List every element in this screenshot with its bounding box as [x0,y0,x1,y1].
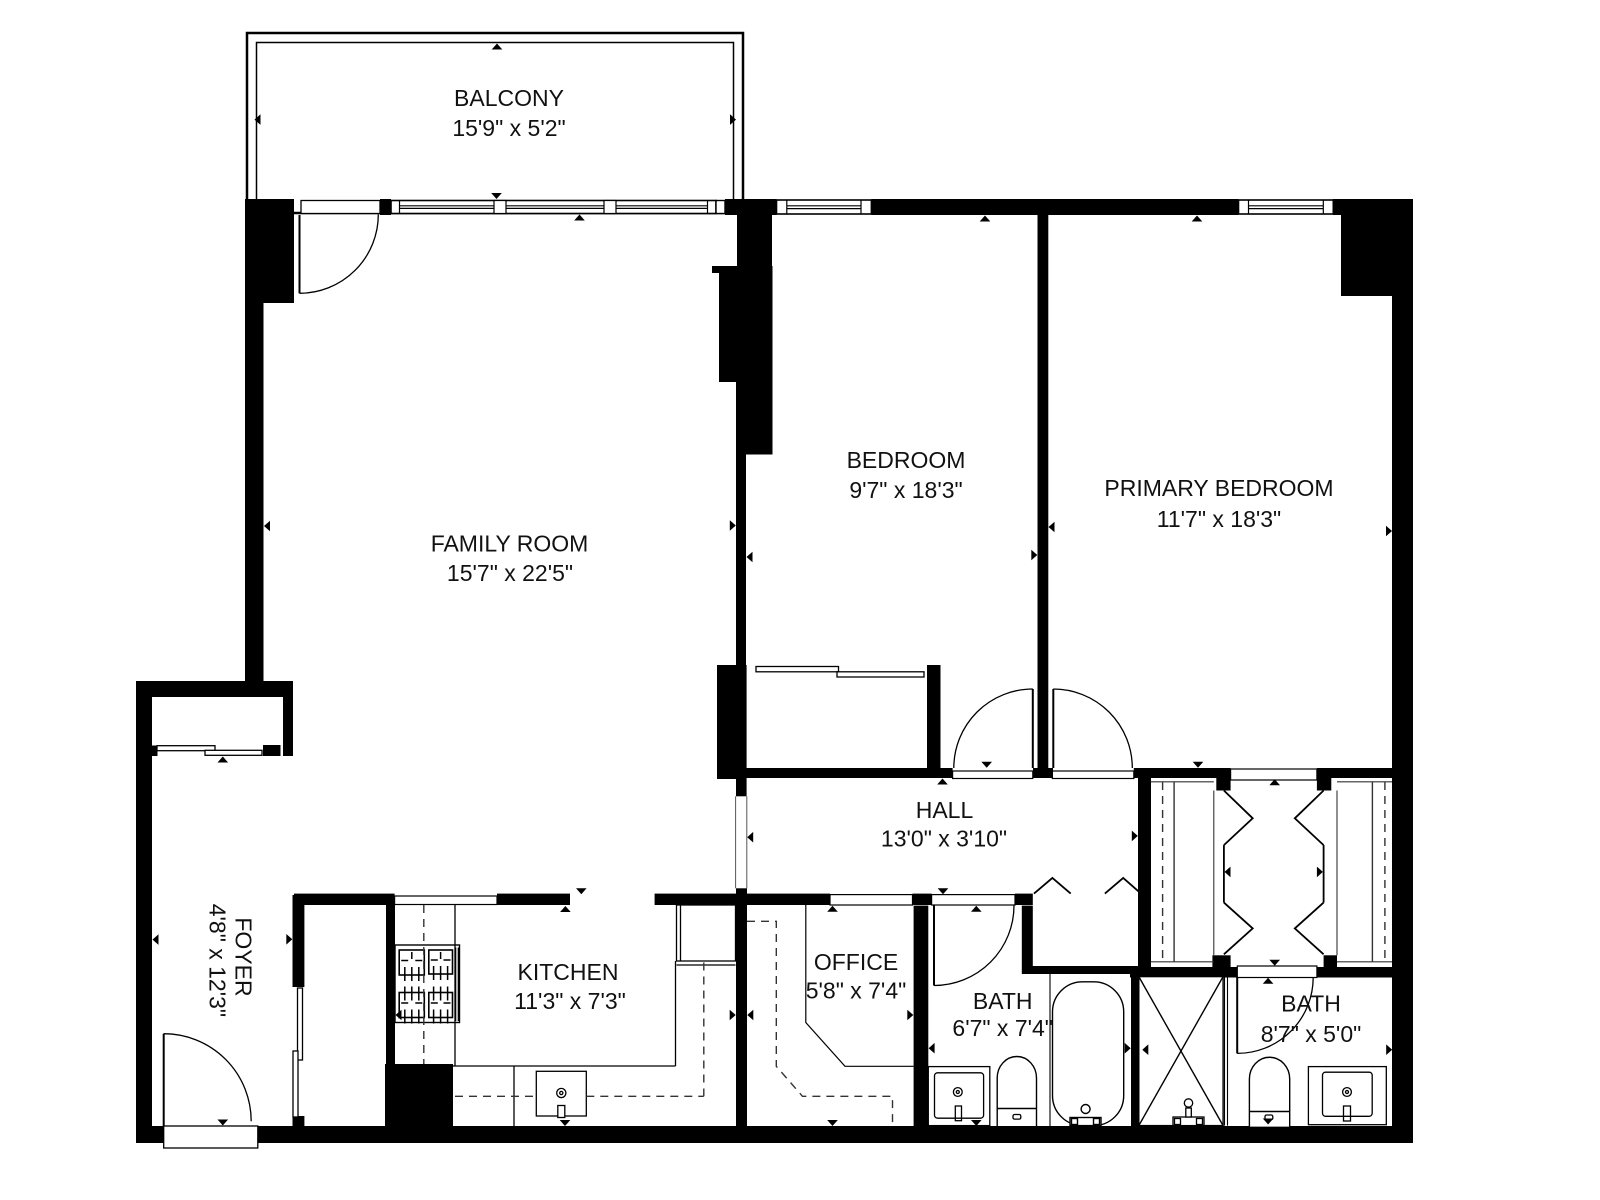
svg-text:HALL: HALL [916,797,974,823]
svg-text:BATH: BATH [973,988,1033,1014]
svg-text:OFFICE: OFFICE [814,949,898,975]
svg-text:PRIMARY BEDROOM: PRIMARY BEDROOM [1104,475,1333,501]
svg-text:11'7" x 18'3": 11'7" x 18'3" [1157,506,1281,532]
svg-text:5'8" x 7'4": 5'8" x 7'4" [806,978,907,1004]
svg-text:9'7" x 18'3": 9'7" x 18'3" [849,477,962,503]
svg-text:BEDROOM: BEDROOM [847,447,966,473]
svg-text:6'7" x 7'4": 6'7" x 7'4" [952,1015,1053,1041]
svg-text:FAMILY ROOM: FAMILY ROOM [431,531,589,557]
svg-text:BATH: BATH [1281,990,1341,1016]
svg-text:BALCONY: BALCONY [454,85,564,111]
svg-text:11'3" x 7'3": 11'3" x 7'3" [514,988,626,1014]
svg-text:15'9" x 5'2": 15'9" x 5'2" [452,115,565,141]
svg-text:8'7" x 5'0": 8'7" x 5'0" [1261,1021,1362,1047]
svg-text:KITCHEN: KITCHEN [518,959,619,985]
svg-text:15'7" x 22'5": 15'7" x 22'5" [447,560,573,586]
svg-text:13'0" x 3'10": 13'0" x 3'10" [881,826,1007,852]
svg-text:FOYER: FOYER [231,917,257,996]
svg-text:4'8" x 12'3": 4'8" x 12'3" [204,904,230,1017]
